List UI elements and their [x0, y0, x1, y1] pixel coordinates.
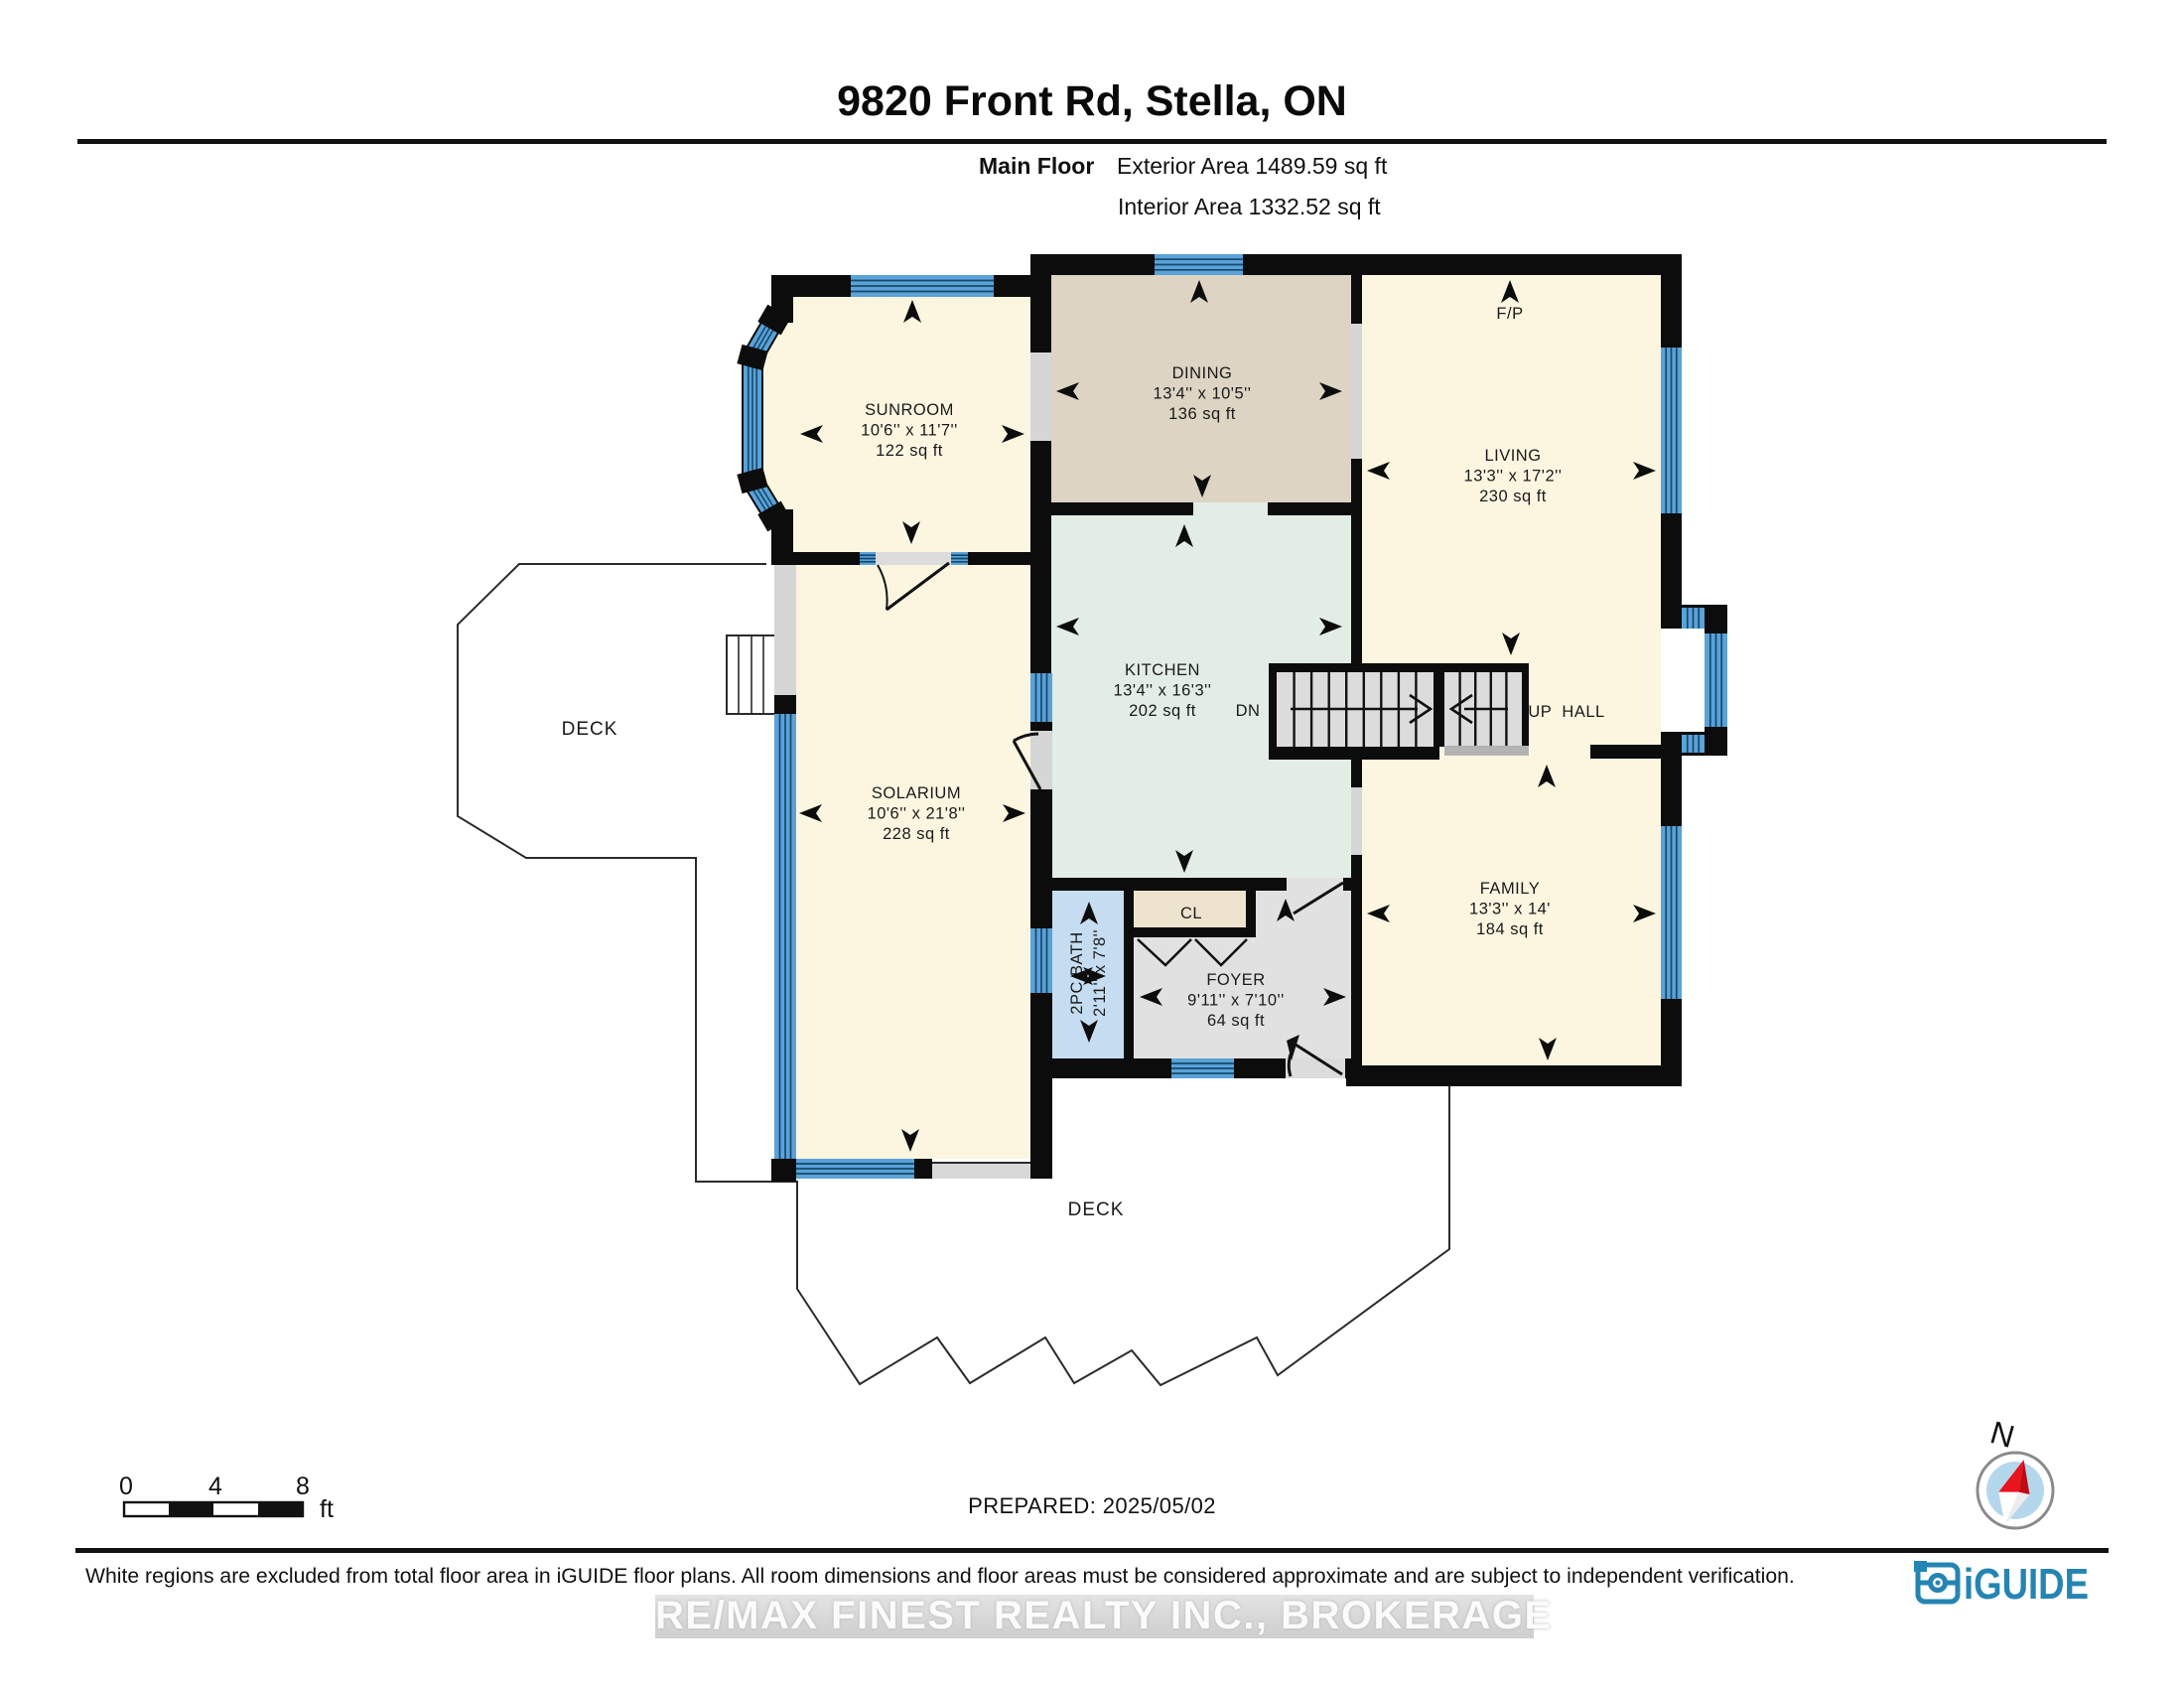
svg-text:DECK: DECK [1068, 1199, 1125, 1220]
svg-text:FAMILY13'3'' x 14'184 sq ft: FAMILY13'3'' x 14'184 sq ft [1469, 880, 1551, 938]
svg-text:ft: ft [320, 1495, 334, 1523]
svg-text:0: 0 [119, 1473, 133, 1500]
svg-text:N: N [1986, 1414, 2018, 1455]
svg-text:CL: CL [1180, 905, 1202, 922]
svg-text:iGUIDE: iGUIDE [1964, 1560, 2089, 1607]
svg-text:PREPARED: 2025/05/02: PREPARED: 2025/05/02 [968, 1493, 1216, 1518]
svg-text:DECK: DECK [562, 719, 618, 740]
svg-text:8: 8 [296, 1473, 310, 1500]
svg-text:F/P: F/P [1496, 305, 1523, 323]
svg-text:DN: DN [1236, 702, 1261, 720]
svg-text:UP HALL: UP HALL [1528, 703, 1604, 721]
svg-text:4: 4 [208, 1473, 222, 1500]
